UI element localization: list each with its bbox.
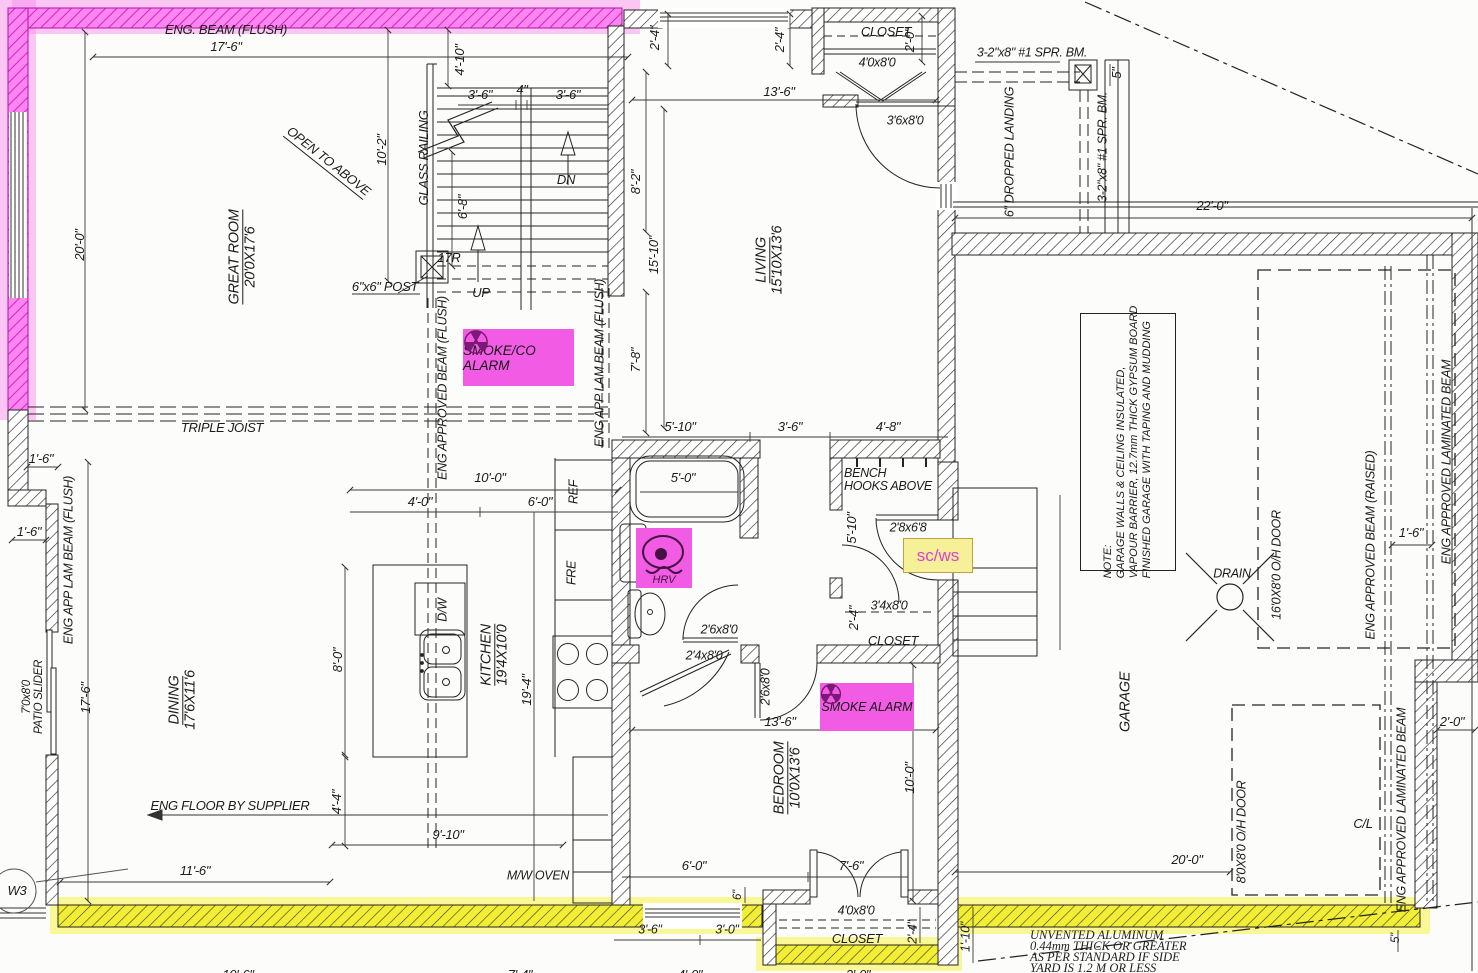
living-label: LIVING 15'10X13'6 [754, 226, 785, 295]
bench-hooks-label: BENCH HOOKS ABOVE [844, 467, 932, 493]
smoke-alarm-box: SMOKE ALARM [820, 683, 914, 731]
dim-4-0-kitchen: 4'-0" [408, 495, 432, 509]
dining-label: DINING 17'6X11'6 [167, 670, 198, 730]
floor-plan-linework [0, 0, 1478, 973]
dropped-landing-label: 6" DROPPED LANDING [1003, 87, 1016, 217]
patio-size-label: 7'0x8'0 [21, 680, 33, 714]
garage-name: GARAGE [1117, 672, 1133, 732]
living-name: LIVING [754, 237, 770, 283]
dim-2-4-b: 2'-4" [773, 28, 787, 52]
dim-3-6-window: 3'-6" [638, 923, 661, 936]
glass-railing-label: GLASS RAILING [417, 110, 431, 205]
eng-beam-flush-label: ENG. BEAM (FLUSH) [165, 23, 287, 37]
kitchen-size: 19'4X10'0 [496, 625, 511, 686]
dim-9-10: 9'-10" [432, 828, 463, 842]
eng-approved-beam-flush-label: ENG APPROVED BEAM (FLUSH) [436, 296, 449, 480]
partial-dim-3: 4'-0" [678, 968, 702, 973]
dim-13-6-bedroom: 13'-6" [764, 715, 795, 729]
smoke-co-alarm-box: SMOKE/CO ALARM [463, 329, 574, 386]
stairs-dn-label: DN [557, 173, 575, 187]
hrv-box: HRV [636, 528, 692, 588]
patio-slider-label: 7'0x8'0 PATIO SLIDER [21, 660, 45, 734]
partial-dim-2: 7'-4" [508, 968, 532, 973]
dim-3-0-window: 3'-0" [715, 923, 738, 936]
garage-note-box: NOTE: GARAGE WALLS & CEILING INSULATED, … [1080, 313, 1176, 571]
eng-app-lam-beam-left-label: ENG APP LAM BEAM (FLUSH) [62, 476, 75, 644]
garage-note-l2: GARAGE WALLS & CEILING INSULATED, [1115, 306, 1128, 579]
dim-4-10: 4'-10" [453, 44, 467, 75]
closet-bench-label: CLOSET [868, 634, 918, 648]
garage-note-text: NOTE: GARAGE WALLS & CEILING INSULATED, … [1102, 306, 1154, 579]
eng-app-lam-beam-right-label: ENG APP LAM BEAM (FLUSH) [593, 279, 606, 447]
hooks-above-label: HOOKS ABOVE [844, 480, 932, 493]
dim-1-6-b: 1'-6" [17, 525, 41, 539]
garage-note-l4: FINISHED GARAGE WITH TAPING AND MUDDING [1141, 306, 1154, 579]
dim-13-6-top: 13'-6" [763, 85, 794, 99]
dim-6-0-bedroom: 6'-0" [682, 859, 706, 873]
dim-2-4-a: 2'-4" [648, 26, 662, 50]
dim-6-8: 6'-8" [456, 195, 470, 219]
dim-4-stair: 4" [516, 83, 527, 97]
partial-dim-1: 10'-6" [222, 968, 253, 973]
dim-2-4-bench: 2'-4" [847, 606, 861, 630]
dim-8-2-entry: 8'-2" [629, 170, 643, 194]
dining-name: DINING [167, 676, 183, 725]
dim-5-bottom: 5" [1390, 933, 1402, 943]
smoke-alarm-icon-2 [820, 683, 842, 705]
bedroom-name: BEDROOM [772, 742, 788, 815]
dim-1-6-a: 1'-6" [29, 452, 53, 466]
dim-5-10-bench: 5'-10" [845, 512, 859, 543]
dim-20-0-left: 20'-0" [73, 229, 87, 260]
door-2680-bedroom-label: 2'6x8'0 [759, 669, 772, 706]
spr-bm-vert-label: 3-2"x8" #1 SPR. BM. [1096, 92, 1109, 202]
dim-11-6: 11'-6" [180, 864, 210, 878]
dim-3-6-stair-a: 3'-6" [468, 88, 492, 102]
dim-8-0: 8'-0" [331, 648, 345, 672]
dw-label: D/W [436, 598, 449, 621]
smoke-alarm-icon [463, 329, 489, 355]
hatched-walls [8, 8, 1478, 965]
kitchen-name: KITCHEN [479, 624, 495, 686]
left-wall-window [9, 112, 27, 298]
eng-approved-laminated-beam-top-label: ENG APPROVED LAMINATED BEAM [1440, 360, 1453, 564]
cl-label: C/L [1353, 817, 1372, 831]
patio-slider [47, 630, 56, 754]
dim-6-0-kitchen: 6'-0" [528, 495, 552, 509]
sc-ws-box: sc/ws [903, 538, 973, 573]
dim-19-4: 19'-4" [520, 674, 534, 705]
great-room-size: 20'0X17'6 [244, 227, 259, 288]
highlight-glows [0, 0, 1430, 971]
ref-label: REF [567, 480, 580, 504]
dining-size: 17'6X11'6 [184, 670, 199, 730]
stairs-17r-label: 17R [438, 251, 461, 265]
dim-2-0-closet: 2'-0" [903, 28, 917, 52]
kitchen-label: KITCHEN 19'4X10'0 [479, 624, 510, 686]
dim-3-6-living: 3'-6" [778, 420, 802, 434]
dim-7-8: 7'-8" [629, 348, 643, 372]
door-3480-label: 3'4x8'0 [871, 599, 908, 612]
dim-10-0-bedroom: 10'-0" [903, 762, 917, 793]
garage-label: GARAGE [1118, 672, 1133, 732]
windows [0, 8, 957, 929]
eng-floor-label: ENG FLOOR BY SUPPLIER [151, 799, 310, 813]
door-4080-top-label: 4'0x8'0 [859, 56, 896, 69]
oh-door-16-label: 16'0X8'0 O/H DOOR [1270, 510, 1283, 619]
dim-6-window: 6" [732, 890, 744, 900]
door-4080-closet-label: 4'0x8'0 [838, 904, 875, 917]
partial-dim-4: 3'-0" [846, 968, 870, 973]
dim-5-10-living: 5'-10" [664, 420, 695, 434]
great-room-label: GREAT ROOM 20'0X17'6 [227, 209, 258, 304]
eng-approved-beam-raised-label: ENG APPROVED BEAM (RAISED) [1364, 451, 1377, 640]
floor-plan-sheet: ENG. BEAM (FLUSH) 17'-6" 20'-0" GREAT RO… [0, 0, 1478, 973]
great-room-name: GREAT ROOM [227, 209, 243, 304]
oh-door-8-label: 8'0X8'0 O/H DOOR [1235, 781, 1248, 884]
door-2868-label: 2'8x6'8 [890, 521, 927, 534]
dim-3-6-stair-b: 3'-6" [556, 88, 580, 102]
w3-label: W3 [8, 884, 27, 898]
dim-20-0-garage: 20'-0" [1171, 853, 1202, 867]
bedroom-label: BEDROOM 10'0X13'6 [772, 742, 803, 815]
door-2680-bath-label: 2'6x8'0 [701, 623, 738, 636]
dim-10-0-kitchen: 10'-0" [474, 471, 505, 485]
dim-5-0-tub: 5'-0" [671, 471, 695, 485]
patio-name-label: PATIO SLIDER [33, 660, 45, 734]
hrv-label: HRV [652, 574, 675, 586]
bedroom-size: 10'0X13'6 [789, 748, 804, 809]
closet-bottom-label: CLOSET [832, 932, 882, 946]
spr-bm-top-label: 3-2"x8" #1 SPR. BM. [977, 46, 1087, 59]
drain-label: DRAIN [1213, 567, 1250, 580]
dim-17-6-dining: 17'-6" [79, 682, 93, 713]
garage-note-l1: NOTE: [1102, 306, 1115, 579]
dim-10-2: 10'-2" [375, 134, 389, 165]
dim-4-4: 4'-4" [330, 790, 344, 814]
dim-2-4-closet: 2'-4" [906, 920, 919, 943]
aluminum-note: UNVENTED ALUMINUM 0.44mm THICK OR GREATE… [1030, 930, 1186, 973]
living-size: 15'10X13'6 [771, 226, 786, 295]
dim-1-6-right: 1'-6" [1399, 526, 1423, 540]
dim-5-top: 5" [1110, 67, 1124, 78]
door-2480-label: 2'4x8'0 [686, 649, 723, 662]
door-3680-label: 3'6x8'0 [887, 114, 924, 127]
dim-7-6: 7'-6" [839, 859, 863, 873]
post-6x6-label: 6"x6" POST [352, 280, 418, 294]
garage-note-l3: VAPOUR BARRIER, 12.7mm THICK GYPSUM BOAR… [1128, 306, 1141, 579]
fre-label: FRE [565, 561, 578, 585]
eng-approved-laminated-beam-bottom-label: ENG APPROVED LAMINATED BEAM [1395, 708, 1408, 912]
dim-2-0-right: 2'-0" [1440, 715, 1464, 729]
dim-17-6-top: 17'-6" [210, 40, 241, 54]
triple-joist-label: TRIPLE JOIST [181, 421, 263, 435]
mw-oven-label: M/W OVEN [507, 869, 569, 882]
dim-1-10: 1'-10" [959, 922, 972, 952]
aluminum-note-l4: YARD IS 1.2 M OR LESS [1030, 963, 1186, 973]
sc-ws-label: sc/ws [917, 546, 960, 566]
dim-4-8-living: 4'-8" [876, 420, 900, 434]
dim-22-0: 22'-0" [1196, 199, 1227, 213]
dim-15-10: 15'-10" [647, 236, 661, 274]
stairs-up-label: UP [472, 286, 489, 300]
